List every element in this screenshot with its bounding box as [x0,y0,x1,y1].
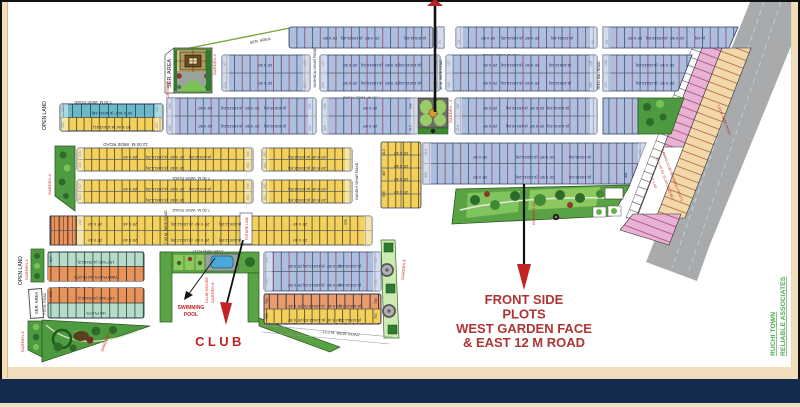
svg-text:& EAST 12 M ROAD: & EAST 12 M ROAD [463,335,585,350]
svg-text:7.50 M. ROAD: 7.50 M. ROAD [43,292,47,315]
svg-text:20' X 50': 20' X 50' [257,63,272,67]
svg-text:RUCHI TOWN: RUCHI TOWN [770,312,777,356]
svg-text:20' X 50': 20' X 50' [197,124,212,128]
svg-text:20' X 50': 20' X 50' [627,36,642,40]
svg-text:20' X 40': 20' X 40' [292,238,307,242]
svg-text:20' X 50': 20' X 50' [472,155,487,159]
svg-text:20' X 40' (6.10X12.20): 20' X 40' (6.10X12.20) [145,166,184,170]
svg-text:(6.10X15.24): (6.10X15.24) [548,81,571,85]
svg-text:12.00 M. WIDE ROAD: 12.00 M. WIDE ROAD [102,142,148,147]
svg-text:30 M. WIDE ROAD: 30 M. WIDE ROAD [439,59,443,90]
svg-text:20' X 40' (6.10X12.20): 20' X 40' (6.10X12.20) [287,166,325,170]
svg-text:20' X 40': 20' X 40' [287,318,302,322]
svg-text:754: 754 [265,298,269,304]
svg-text:(6.10X15.24): (6.10X15.24) [338,283,361,287]
svg-text:20' X 50': 20' X 50' [197,106,212,110]
svg-text:20' X 40' (6.10X12.20): 20' X 40' (6.10X12.20) [170,222,209,226]
svg-text:TEEN IMLI ROAD: TEEN IMLI ROAD [597,61,601,90]
svg-text:20' X 80' (6.10X24.40): 20' X 80' (6.10X24.40) [340,36,379,40]
svg-text:20' X 45' (6.10X13.72): 20' X 45' (6.10X13.72) [302,304,341,308]
svg-text:20' X 50': 20' X 50' [482,124,497,128]
svg-text:15'7"X40' (4.75X12.2): 15'7"X40' (4.75X12.2) [77,296,115,300]
svg-text:20' X 50' (6.10X15.24): 20' X 50' (6.10X15.24) [635,63,674,67]
svg-text:SWIMMING: SWIMMING [178,305,205,311]
svg-text:20' X 50' (6.10X15.24): 20' X 50' (6.10X15.24) [302,283,341,287]
svg-text:GARDEN 8: GARDEN 8 [210,282,215,303]
svg-text:20' X 50': 20' X 50' [482,81,497,85]
svg-text:750: 750 [374,313,378,319]
svg-text:(6.10): (6.10) [694,36,705,40]
svg-text:506: 506 [382,191,386,197]
svg-text:FUTURE LINK: FUTURE LINK [245,216,249,240]
svg-text:765: 765 [265,313,269,319]
svg-text:20' X 80': 20' X 80' [480,36,495,40]
svg-text:(6.10X12.20): (6.10X12.20) [218,222,241,226]
svg-text:7.50 M. WIDE ROAD: 7.50 M. WIDE ROAD [74,100,112,105]
svg-text:(6.10X15.24): (6.10X15.24) [546,124,569,128]
svg-text:PLOTS: PLOTS [502,307,546,322]
svg-text:20' X 40': 20' X 40' [87,222,102,226]
svg-text:467: 467 [382,170,386,176]
svg-text:20' X 50': 20' X 50' [342,81,357,85]
svg-text:OVER VIEW PLOT: OVER VIEW PLOT [192,249,224,253]
svg-text:GARDEN-5: GARDEN-5 [24,259,29,280]
svg-text:GARDEN-6: GARDEN-6 [20,331,25,352]
svg-text:20' X 50': 20' X 50' [482,106,497,110]
svg-text:20' X 45': 20' X 45' [287,304,302,308]
svg-text:20' X 50' (6.10X15.24): 20' X 50' (6.10X15.24) [360,81,399,85]
svg-text:UG PLOTS: UG PLOTS [86,311,106,315]
svg-text:20' X 50': 20' X 50' [362,124,377,128]
svg-text:(6.10X12.20): (6.10X12.20) [218,238,241,242]
svg-text:20' X 40' (6.10X12.20): 20' X 40' (6.10X12.20) [145,155,184,159]
svg-text:YASHODA VIHAR ROAD: YASHODA VIHAR ROAD [313,47,317,88]
svg-text:(6.10X15.24): (6.10X15.24) [263,124,286,128]
svg-text:20' X 40': 20' X 40' [393,151,408,155]
svg-text:POOL: POOL [184,312,198,318]
svg-text:OPEN LAND: OPEN LAND [42,101,48,130]
svg-text:WEST GARDEN FACE: WEST GARDEN FACE [456,321,592,336]
svg-text:(5.10X12.20): (5.10X12.20) [338,318,361,322]
svg-text:20' X 40': 20' X 40' [122,155,137,159]
svg-text:20' X 50' (6.10X15.24): 20' X 50' (6.10X15.24) [500,63,539,67]
svg-text:20' X 50' (6.10X15.24): 20' X 50' (6.10X15.24) [505,106,544,110]
svg-text:15'7"X40' (4.75X12.2): 15'7"X40' (4.75X12.2) [77,260,115,264]
svg-text:20' X 50' (6.10X15.24): 20' X 50' (6.10X15.24) [645,36,684,40]
svg-text:744: 744 [374,298,378,304]
svg-text:FRONT SIDE: FRONT SIDE [485,292,564,307]
svg-text:20' X 50' (6.10X15.24): 20' X 50' (6.10X15.24) [500,81,539,85]
svg-text:(6.10X15.24): (6.10X15.24) [548,63,571,67]
svg-text:20' X 40': 20' X 40' [122,238,137,242]
svg-text:(6.10X12.20): (6.10X12.20) [188,187,211,191]
svg-text:20' X 36.7' (6.10X11.18): 20' X 36.7' (6.10X11.18) [91,111,132,115]
svg-text:20' X 50' (6.10X15.24): 20' X 50' (6.10X15.24) [505,124,544,128]
svg-text:20' X 50': 20' X 50' [342,63,357,67]
svg-text:20' X 50' (6.10X15.24): 20' X 50' (6.10X15.24) [360,63,399,67]
svg-text:20' X 40' (6.10X12.20): 20' X 40' (6.10X12.20) [170,238,209,242]
svg-text:20' X 50' (6.10X15.24): 20' X 50' (6.10X15.24) [635,81,674,85]
svg-text:20' X 50': 20' X 50' [287,283,302,287]
svg-text:20' X 40': 20' X 40' [122,187,137,191]
svg-text:20' X 80' (6.10X24.40): 20' X 80' (6.10X24.40) [500,36,539,40]
svg-text:(6.13X15.24): (6.13X15.24) [568,175,591,179]
svg-text:(6.10X24.40): (6.10X24.40) [550,36,573,40]
svg-text:20' X 40' (6.10X12.20): 20' X 40' (6.10X12.20) [287,155,325,159]
svg-text:TWIN PLOTS UG PLOTS: TWIN PLOTS UG PLOTS [74,275,118,279]
svg-text:20' X 50': 20' X 50' [482,63,497,67]
svg-text:20' X 40': 20' X 40' [393,177,408,181]
svg-text:20' X 50' (6.13X15.24): 20' X 50' (6.13X15.24) [515,155,554,159]
svg-text:GANDHI VIHAR ROAD: GANDHI VIHAR ROAD [355,162,359,200]
svg-text:20' X 50' (6.10X15.24): 20' X 50' (6.10X15.24) [220,124,259,128]
svg-text:843: 843 [49,291,53,297]
svg-text:CLUB HOUSE: CLUB HOUSE [204,277,209,303]
svg-text:20' X 50' (6.10X15.24): 20' X 50' (6.10X15.24) [302,264,341,268]
svg-text:20' X 40': 20' X 40' [393,164,408,168]
svg-text:20' X 40': 20' X 40' [292,222,307,226]
svg-text:20' X 40' (6.10X12.20): 20' X 40' (6.10X12.20) [287,198,325,202]
svg-text:GARDEN 10: GARDEN 10 [531,202,536,225]
svg-text:CLUB: CLUB [195,334,245,349]
svg-text:20' X 40' (6.10X12.20): 20' X 40' (6.10X12.20) [287,187,325,191]
svg-text:441: 441 [624,172,628,178]
svg-text:SER. AREA: SER. AREA [34,292,39,314]
svg-text:(6.10X24.40): (6.10X24.40) [403,36,426,40]
svg-text:20' X 50': 20' X 50' [472,175,487,179]
svg-text:(6.10X15.24): (6.10X15.24) [546,106,569,110]
svg-text:20' X 40' (6.10X12.20): 20' X 40' (6.10X12.20) [145,187,184,191]
svg-text:(6.10X15.24): (6.10X15.24) [338,264,361,268]
svg-text:20' X 50': 20' X 50' [362,106,377,110]
svg-text:20' X 40': 20' X 40' [87,238,102,242]
svg-text:20' X 50' (6.10X15.24): 20' X 50' (6.10X15.24) [220,106,259,110]
svg-text:817: 817 [49,256,53,262]
svg-text:20' X 50': 20' X 50' [257,81,272,85]
svg-text:20' X 50' (6.13X15.24): 20' X 50' (6.13X15.24) [515,175,554,179]
svg-text:20' X 44' (6.10X13.41): 20' X 44' (6.10X13.41) [92,125,130,129]
svg-text:RELIABLE ASSOCIATES: RELIABLE ASSOCIATES [780,276,787,356]
svg-text:(6.10X15.24): (6.10X15.24) [263,106,286,110]
svg-text:GARDEN - 4: GARDEN - 4 [448,99,453,123]
svg-text:(6.10X15.24): (6.10X15.24) [398,63,421,67]
svg-text:413: 413 [382,149,386,155]
svg-text:20' X 40': 20' X 40' [393,190,408,194]
svg-text:20' X 44': 20' X 44' [122,222,137,226]
svg-text:(6.10X15.24): (6.10X15.24) [398,81,421,85]
svg-text:20' X 40' (6.10X12.20): 20' X 40' (6.10X12.20) [145,198,184,202]
svg-text:(6.10X13.72): (6.10X13.72) [338,304,361,308]
svg-text:7.50 M. WIDE ROAD: 7.50 M. WIDE ROAD [164,210,168,244]
svg-text:20' X 80': 20' X 80' [322,36,337,40]
svg-text:GARDEN-4: GARDEN-4 [47,174,52,195]
svg-text:GARDEN-3: GARDEN-3 [212,54,217,75]
svg-text:(6.13X15.24): (6.13X15.24) [568,155,591,159]
svg-text:576: 576 [344,219,348,225]
svg-text:(6.10X12.20): (6.10X12.20) [188,155,211,159]
svg-text:7.50 M. WIDE ROAD: 7.50 M. WIDE ROAD [172,208,210,213]
svg-text:20' X 50': 20' X 50' [287,264,302,268]
svg-text:20' X 40' (6.10X12.20): 20' X 40' (6.10X12.20) [302,318,340,322]
